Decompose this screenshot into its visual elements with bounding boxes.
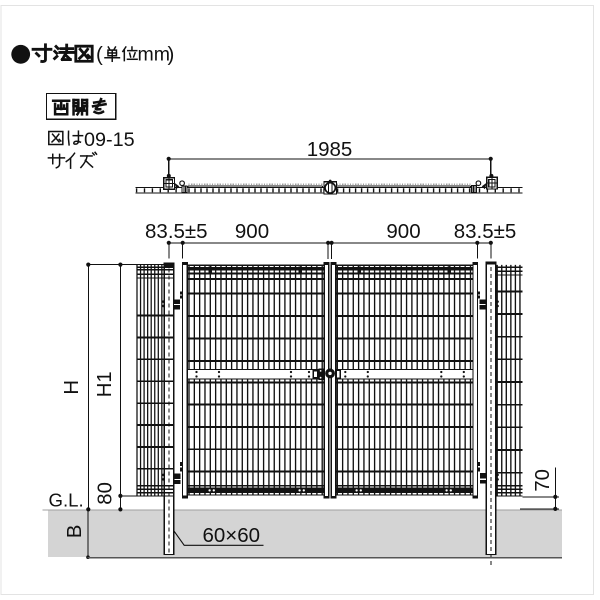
svg-text:80: 80 — [94, 482, 116, 505]
svg-text:H1: H1 — [94, 371, 116, 397]
svg-text:900: 900 — [235, 220, 269, 243]
svg-text:mm: mm — [138, 43, 171, 65]
svg-text:09-15: 09-15 — [84, 129, 135, 151]
svg-text:60×60: 60×60 — [203, 524, 261, 547]
svg-text:): ) — [168, 43, 175, 66]
svg-text:70: 70 — [532, 469, 554, 492]
svg-text:G.L.: G.L. — [49, 490, 84, 511]
svg-text:H: H — [61, 380, 83, 395]
svg-text:900: 900 — [386, 220, 420, 243]
svg-text:1985: 1985 — [307, 138, 353, 161]
svg-text:B: B — [64, 525, 86, 539]
svg-text:(: ( — [96, 43, 103, 66]
svg-text:83.5±5: 83.5±5 — [145, 220, 208, 243]
svg-text:83.5±5: 83.5±5 — [454, 220, 517, 243]
